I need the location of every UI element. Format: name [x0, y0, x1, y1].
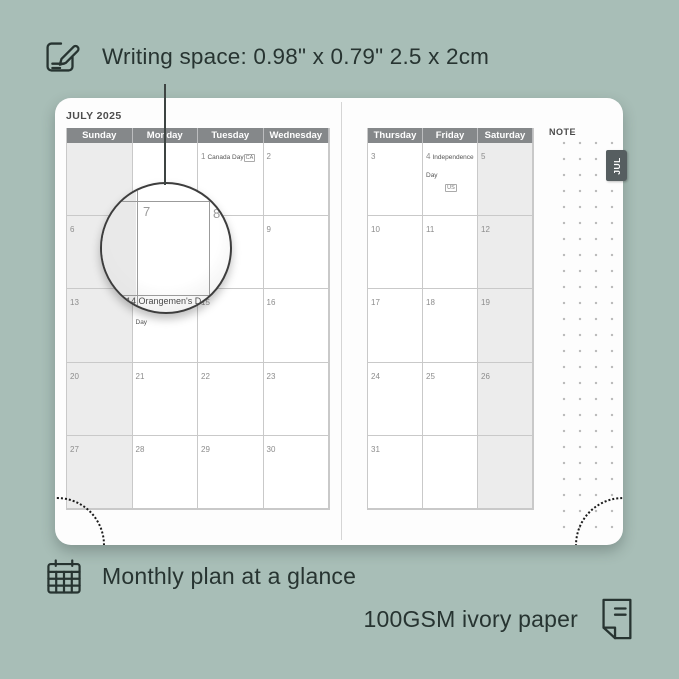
calendar-cell: 5 — [478, 143, 533, 216]
magnified-day-7: 7 — [143, 204, 150, 219]
calendar-cell: 23 — [264, 363, 330, 436]
calendar-cell: 21 — [133, 363, 199, 436]
calendar-cell: 26 — [478, 363, 533, 436]
day-number: 5 — [481, 152, 485, 161]
day-number: 2 — [267, 152, 271, 161]
magnified-sunday-shading — [102, 184, 136, 312]
monthly-plan-annotation: Monthly plan at a glance — [42, 554, 356, 598]
pencil-note-icon — [38, 34, 84, 80]
day-number: 31 — [371, 445, 380, 454]
magnified-event-text: 14 Orangemen's D — [126, 296, 201, 306]
holiday-label: Independence Day — [426, 154, 474, 179]
day-number: 12 — [481, 225, 490, 234]
note-dot-grid — [552, 131, 618, 531]
calendar-cell: 3 — [368, 143, 423, 216]
calendar-cell — [478, 436, 533, 509]
calendar-cell: 17 — [368, 289, 423, 362]
calendar-cell: 28 — [133, 436, 199, 509]
ivory-paper-text: 100GSM ivory paper — [363, 606, 578, 633]
day-number: 4 — [426, 152, 430, 161]
holiday-label: Canada Day — [207, 154, 243, 161]
day-number: 30 — [267, 445, 276, 454]
day-number: 17 — [371, 298, 380, 307]
calendar-cell: 4Independence DayUS — [423, 143, 478, 216]
day-number: 11 — [426, 225, 434, 234]
day-number: 27 — [70, 445, 79, 454]
calendar-cell: 29 — [198, 436, 264, 509]
day-header: Sunday — [67, 128, 133, 143]
calendar-cell: 16 — [264, 289, 330, 362]
note-label: NOTE — [549, 127, 579, 137]
magnified-day-8: 8 — [213, 206, 220, 221]
day-number: 25 — [426, 372, 435, 381]
calendar-cell: 24 — [368, 363, 423, 436]
calendar-cell: 18 — [423, 289, 478, 362]
calendar-cell: 11 — [423, 216, 478, 289]
corner-perforation-right — [561, 493, 623, 545]
ivory-paper-annotation: 100GSM ivory paper — [363, 595, 638, 643]
day-number: 19 — [481, 298, 490, 307]
day-number: 22 — [201, 372, 210, 381]
planner-spread: JULY 2025 SundayMondayTuesdayWednesday1C… — [55, 98, 623, 545]
day-header: Tuesday — [198, 128, 264, 143]
calendar-grid-icon — [42, 554, 86, 598]
day-number: 1 — [201, 152, 205, 161]
country-badge: US — [445, 184, 457, 192]
calendar-cell: 12 — [478, 216, 533, 289]
day-header: Saturday — [478, 128, 533, 143]
calendar-cell: 25 — [423, 363, 478, 436]
month-tab: JUL — [606, 150, 627, 181]
day-header: Wednesday — [264, 128, 330, 143]
monthly-plan-text: Monthly plan at a glance — [102, 563, 356, 590]
day-number: 29 — [201, 445, 210, 454]
day-number: 18 — [426, 298, 435, 307]
month-title: JULY 2025 — [66, 110, 122, 122]
calendar-right-page: ThursdayFridaySaturday34Independence Day… — [367, 128, 534, 510]
day-number: 9 — [267, 225, 271, 234]
corner-perforation-left — [56, 493, 118, 545]
calendar-cell: 20 — [67, 363, 133, 436]
paper-sheet-icon — [594, 595, 638, 643]
calendar-cell: 19 — [478, 289, 533, 362]
calendar-cell: 22 — [198, 363, 264, 436]
calendar-cell: 31 — [368, 436, 423, 509]
calendar-cell: 15 — [198, 289, 264, 362]
magnifier-connector-line — [164, 84, 166, 185]
calendar-cell: 30 — [264, 436, 330, 509]
day-number: 3 — [371, 152, 375, 161]
page-gutter-line — [341, 102, 342, 540]
writing-space-text: Writing space: 0.98" x 0.79" 2.5 x 2cm — [102, 44, 489, 70]
day-number: 26 — [481, 372, 490, 381]
calendar-cell: 2 — [264, 143, 330, 216]
day-header: Friday — [423, 128, 478, 143]
day-number: 28 — [136, 445, 145, 454]
day-number: 6 — [70, 225, 74, 234]
magnifier-circle: 7 8 14 Orangemen's D — [100, 182, 232, 314]
day-number: 10 — [371, 225, 380, 234]
day-number: 23 — [267, 372, 276, 381]
day-number: 21 — [136, 372, 145, 381]
writing-space-annotation: Writing space: 0.98" x 0.79" 2.5 x 2cm — [38, 34, 489, 80]
calendar-cell: 9 — [264, 216, 330, 289]
product-image: { "colors": { "background": "#a8beb7", "… — [0, 0, 679, 679]
day-number: 20 — [70, 372, 79, 381]
country-badge: CA — [244, 154, 256, 162]
calendar-cell — [423, 436, 478, 509]
calendar-cell: 10 — [368, 216, 423, 289]
day-number: 13 — [70, 298, 79, 307]
day-number: 24 — [371, 372, 380, 381]
day-number: 16 — [267, 298, 276, 307]
day-header: Thursday — [368, 128, 423, 143]
month-tab-label: JUL — [612, 157, 622, 175]
